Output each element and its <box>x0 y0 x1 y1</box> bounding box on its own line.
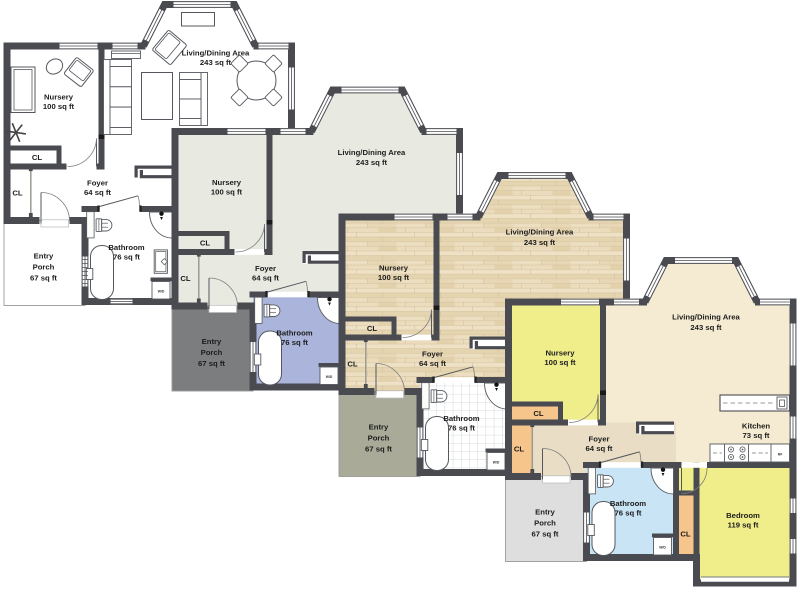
svg-text:119 sq ft: 119 sq ft <box>728 521 759 530</box>
svg-text:76 sq ft: 76 sq ft <box>448 424 475 433</box>
svg-text:76 sq ft: 76 sq ft <box>113 253 140 262</box>
svg-text:Bathroom: Bathroom <box>610 499 646 508</box>
svg-text:CL: CL <box>533 409 544 418</box>
svg-text:Foyer: Foyer <box>589 435 610 444</box>
svg-text:Nursery: Nursery <box>44 93 74 102</box>
svg-text:100 sq ft: 100 sq ft <box>378 273 410 282</box>
svg-text:243 sq ft: 243 sq ft <box>524 238 556 247</box>
svg-text:Porch: Porch <box>368 434 390 443</box>
svg-text:W/D: W/D <box>158 289 165 293</box>
svg-text:Living/Dining Area: Living/Dining Area <box>182 49 250 58</box>
svg-text:Bathroom: Bathroom <box>276 329 312 338</box>
svg-text:Entry: Entry <box>34 252 54 261</box>
svg-text:Nursery: Nursery <box>212 178 242 187</box>
svg-text:Living/Dining Area: Living/Dining Area <box>338 148 406 157</box>
svg-text:CL: CL <box>200 239 211 248</box>
svg-text:Kitchen: Kitchen <box>742 422 770 431</box>
svg-text:Entry: Entry <box>535 508 555 517</box>
svg-text:Foyer: Foyer <box>422 350 443 359</box>
svg-text:CL: CL <box>514 445 525 454</box>
svg-text:Entry: Entry <box>202 337 222 346</box>
svg-text:67 sq ft: 67 sq ft <box>365 445 392 454</box>
svg-text:Bedroom: Bedroom <box>726 511 760 520</box>
svg-text:73 sq ft: 73 sq ft <box>743 431 770 440</box>
svg-text:100 sq ft: 100 sq ft <box>544 358 576 367</box>
svg-text:243 sq ft: 243 sq ft <box>200 58 232 67</box>
svg-text:64 sq ft: 64 sq ft <box>586 444 613 453</box>
svg-text:100 sq ft: 100 sq ft <box>43 102 75 111</box>
svg-text:100 sq ft: 100 sq ft <box>211 188 243 197</box>
svg-text:CL: CL <box>32 153 43 162</box>
svg-text:W/D: W/D <box>493 460 500 464</box>
svg-text:Foyer: Foyer <box>87 179 108 188</box>
svg-text:Porch: Porch <box>534 519 556 528</box>
svg-text:Nursery: Nursery <box>545 349 575 358</box>
svg-text:76 sq ft: 76 sq ft <box>281 338 308 347</box>
svg-text:Living/Dining Area: Living/Dining Area <box>506 228 574 237</box>
svg-text:CL: CL <box>680 530 691 539</box>
svg-text:64 sq ft: 64 sq ft <box>419 359 446 368</box>
svg-text:RF: RF <box>778 453 783 457</box>
svg-text:64 sq ft: 64 sq ft <box>252 274 279 283</box>
svg-text:243 sq ft: 243 sq ft <box>690 323 722 332</box>
svg-text:Bathroom: Bathroom <box>108 243 144 252</box>
svg-text:CL: CL <box>347 360 358 369</box>
svg-text:67 sq ft: 67 sq ft <box>198 359 225 368</box>
svg-text:243 sq ft: 243 sq ft <box>356 158 388 167</box>
svg-text:64 sq ft: 64 sq ft <box>84 188 111 197</box>
svg-text:Porch: Porch <box>201 348 223 357</box>
svg-text:Living/Dining Area: Living/Dining Area <box>672 313 740 322</box>
svg-text:76 sq ft: 76 sq ft <box>615 509 642 518</box>
svg-text:Bathroom: Bathroom <box>443 414 479 423</box>
svg-text:Nursery: Nursery <box>379 264 409 273</box>
svg-text:W/D: W/D <box>326 375 333 379</box>
svg-text:67 sq ft: 67 sq ft <box>30 274 57 283</box>
svg-text:Porch: Porch <box>33 263 55 272</box>
svg-text:W/D: W/D <box>659 545 666 549</box>
svg-text:CL: CL <box>180 274 191 283</box>
svg-text:CL: CL <box>12 189 23 198</box>
svg-text:Entry: Entry <box>369 423 389 432</box>
svg-text:67 sq ft: 67 sq ft <box>532 530 559 539</box>
svg-text:CL: CL <box>367 324 378 333</box>
svg-text:Foyer: Foyer <box>255 264 276 273</box>
